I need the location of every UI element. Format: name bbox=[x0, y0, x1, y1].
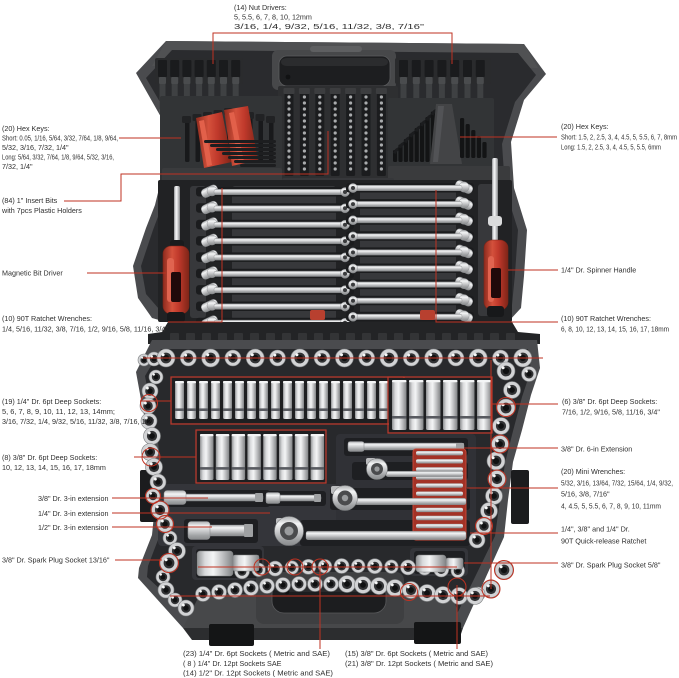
svg-text:Magnetic Bit Driver: Magnetic Bit Driver bbox=[2, 269, 63, 278]
svg-text:(23) 1/4" Dr. 6pt Sockets ( Me: (23) 1/4" Dr. 6pt Sockets ( Metric and S… bbox=[183, 649, 330, 658]
svg-text:6, 8, 10, 12, 13, 14, 15, 16,: 6, 8, 10, 12, 13, 14, 15, 16, 17, 18mm bbox=[561, 325, 669, 334]
svg-text:(14) Nut Drivers:: (14) Nut Drivers: bbox=[234, 3, 287, 12]
svg-text:with 7pcs Plastic Holders: with 7pcs Plastic Holders bbox=[1, 206, 82, 215]
svg-text:3/16, 1/4, 9/32, 5/16, 11/32,: 3/16, 1/4, 9/32, 5/16, 11/32, 3/8, 7/16" bbox=[234, 22, 425, 31]
svg-text:(84) 1" Insert Bits: (84) 1" Insert Bits bbox=[2, 196, 58, 205]
svg-text:Short: 1.5, 2, 2.5, 3, 4, 4.5,: Short: 1.5, 2, 2.5, 3, 4, 4.5, 5, 5.5, 6… bbox=[561, 133, 677, 142]
svg-text:(10) 90T Ratchet Wrenches:: (10) 90T Ratchet Wrenches: bbox=[561, 314, 651, 323]
svg-text:3/16, 7/32, 1/4, 9/32, 5/16, 1: 3/16, 7/32, 1/4, 9/32, 5/16, 11/32, 3/8,… bbox=[2, 417, 154, 426]
svg-text:1/4" Dr. Spinner Handle: 1/4" Dr. Spinner Handle bbox=[561, 266, 636, 275]
svg-text:(8) 3/8" Dr. 6pt Deep Sockets:: (8) 3/8" Dr. 6pt Deep Sockets: bbox=[2, 453, 97, 462]
svg-text:4, 4.5, 5, 5.5, 6, 7, 8, 9, 10: 4, 4.5, 5, 5.5, 6, 7, 8, 9, 10, 11mm bbox=[561, 502, 661, 511]
svg-text:3/8" Dr. Spark Plug Socket 5/8: 3/8" Dr. Spark Plug Socket 5/8" bbox=[561, 561, 661, 570]
svg-text:(21) 3/8" Dr. 12pt Sockets ( M: (21) 3/8" Dr. 12pt Sockets ( Metric and … bbox=[345, 659, 493, 668]
svg-text:5/32, 3/16, 7/32, 1/4": 5/32, 3/16, 7/32, 1/4" bbox=[2, 143, 69, 152]
svg-text:5, 6, 7, 8, 9, 10, 11, 12, 13,: 5, 6, 7, 8, 9, 10, 11, 12, 13, 14mm; bbox=[2, 407, 115, 416]
svg-text:90T Quick-release Ratchet: 90T Quick-release Ratchet bbox=[561, 537, 646, 546]
svg-text:5/16, 3/8, 7/16": 5/16, 3/8, 7/16" bbox=[561, 490, 610, 499]
svg-text:(15) 3/8" Dr. 6pt Sockets ( Me: (15) 3/8" Dr. 6pt Sockets ( Metric and S… bbox=[345, 649, 488, 658]
svg-text:(14) 1/2" Dr. 12pt Sockets ( M: (14) 1/2" Dr. 12pt Sockets ( Metric and … bbox=[183, 669, 333, 678]
svg-text:(6) 3/8" Dr. 6pt Deep Sockets:: (6) 3/8" Dr. 6pt Deep Sockets: bbox=[562, 397, 657, 406]
svg-text:7/32, 1/4": 7/32, 1/4" bbox=[2, 162, 33, 171]
svg-text:Long: 5/64, 3/32, 7/64, 1/8, 9: Long: 5/64, 3/32, 7/64, 1/8, 9/64, 5/32,… bbox=[2, 153, 114, 162]
svg-text:(20) Hex Keys:: (20) Hex Keys: bbox=[2, 124, 50, 133]
svg-text:(20) Mini Wrenches:: (20) Mini Wrenches: bbox=[561, 467, 625, 476]
svg-text:1/4", 3/8" and 1/4" Dr.: 1/4", 3/8" and 1/4" Dr. bbox=[561, 525, 630, 534]
svg-text:3/8" Dr. 6-in Extension: 3/8" Dr. 6-in Extension bbox=[561, 445, 632, 454]
svg-text:(19) 1/4" Dr. 6pt Deep Sockets: (19) 1/4" Dr. 6pt Deep Sockets: bbox=[2, 397, 101, 406]
svg-text:1/2" Dr. 3-in extension: 1/2" Dr. 3-in extension bbox=[38, 523, 108, 532]
svg-text:10, 12, 13, 14, 15, 16, 17, 18: 10, 12, 13, 14, 15, 16, 17, 18mm bbox=[2, 463, 106, 472]
svg-text:( 8 ) 1/4" Dr. 12pt Sockets SA: ( 8 ) 1/4" Dr. 12pt Sockets SAE bbox=[183, 659, 282, 668]
svg-text:Long: 1.5, 2, 2.5, 3, 4, 4.5,: Long: 1.5, 2, 2.5, 3, 4, 4.5, 5, 5.5, 6m… bbox=[561, 143, 661, 152]
svg-text:3/8" Dr. 3-in extension: 3/8" Dr. 3-in extension bbox=[38, 494, 108, 503]
svg-text:5, 5.5, 6, 7, 8, 10, 12mm: 5, 5.5, 6, 7, 8, 10, 12mm bbox=[234, 13, 312, 22]
svg-text:Short: 0.05, 1/16, 5/64, 3/32,: Short: 0.05, 1/16, 5/64, 3/32, 7/64, 1/8… bbox=[2, 134, 118, 143]
svg-text:(20) Hex Keys:: (20) Hex Keys: bbox=[561, 122, 609, 131]
svg-text:1/4" Dr. 3-in extension: 1/4" Dr. 3-in extension bbox=[38, 509, 108, 518]
svg-text:5/32, 3/16, 13/64, 7/32, 15/64: 5/32, 3/16, 13/64, 7/32, 15/64, 1/4, 9/3… bbox=[561, 479, 673, 488]
svg-text:3/8" Dr. Spark Plug Socket 13/: 3/8" Dr. Spark Plug Socket 13/16" bbox=[2, 556, 110, 565]
svg-text:1/4, 5/16, 11/32, 3/8, 7/16, 1: 1/4, 5/16, 11/32, 3/8, 7/16, 1/2, 9/16, … bbox=[2, 325, 168, 334]
svg-text:(10) 90T Ratchet Wrenches:: (10) 90T Ratchet Wrenches: bbox=[2, 314, 92, 323]
svg-text:7/16, 1/2, 9/16, 5/8, 11/16, 3: 7/16, 1/2, 9/16, 5/8, 11/16, 3/4" bbox=[562, 408, 660, 417]
